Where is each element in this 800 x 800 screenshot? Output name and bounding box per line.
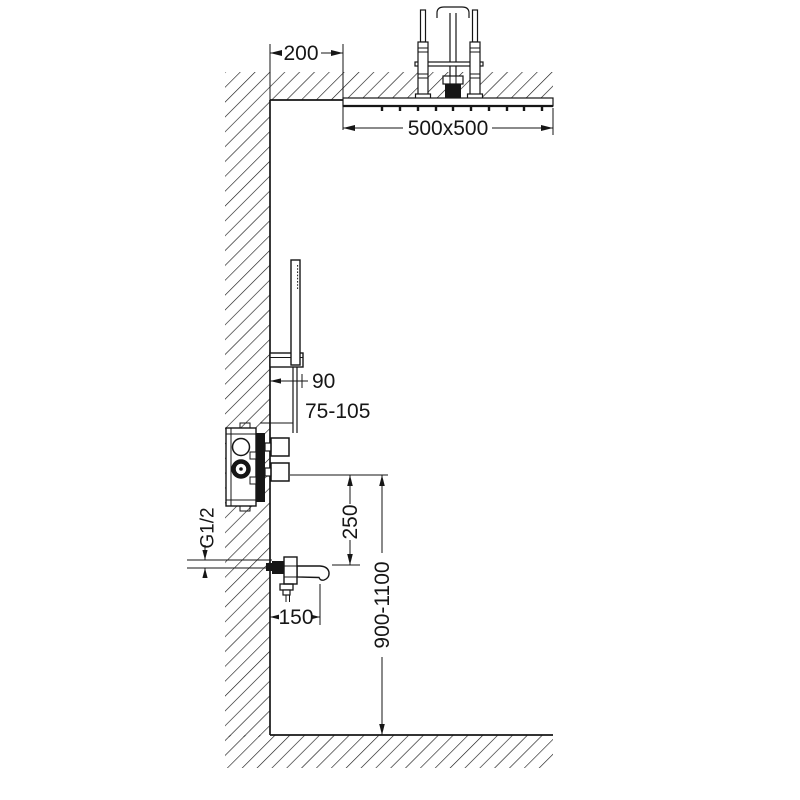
- floor-section: [225, 735, 553, 768]
- dim-valve-to-spout: 250: [332, 475, 362, 565]
- ceiling-shower-head: [343, 98, 553, 111]
- dim-hand-shower-offset: 90: [270, 370, 335, 393]
- technical-drawing-canvas: 200 500x500 90 75-105 250 900-1100: [0, 0, 800, 800]
- shower-installation-diagram: 200 500x500 90 75-105 250 900-1100: [0, 0, 800, 800]
- dim-spout-reach-label: 150: [278, 606, 313, 629]
- dim-valve-to-spout-label: 250: [339, 504, 362, 539]
- dim-valve-depth-label: 75-105: [305, 400, 370, 423]
- dim-spout-height: 900-1100: [371, 475, 394, 735]
- ceiling-section: [270, 72, 553, 100]
- wall-section: [225, 72, 270, 737]
- dim-spout-reach: 150: [270, 584, 320, 629]
- spout-wall-mount: [272, 561, 284, 574]
- dim-shower-head-size-label: 500x500: [408, 117, 489, 140]
- dim-shower-head-size: 500x500: [343, 108, 553, 140]
- concealed-mixer-valve: [226, 423, 265, 511]
- dim-valve-depth: 75-105: [260, 400, 370, 423]
- dim-hand-shower-offset-label: 90: [312, 370, 335, 393]
- hand-shower-hose: [293, 367, 297, 433]
- callout-thread-size-label: G1/2: [198, 507, 219, 548]
- dim-ceiling-offset-label: 200: [283, 42, 318, 65]
- dim-spout-height-label: 900-1100: [371, 561, 394, 648]
- hand-shower: [291, 260, 300, 365]
